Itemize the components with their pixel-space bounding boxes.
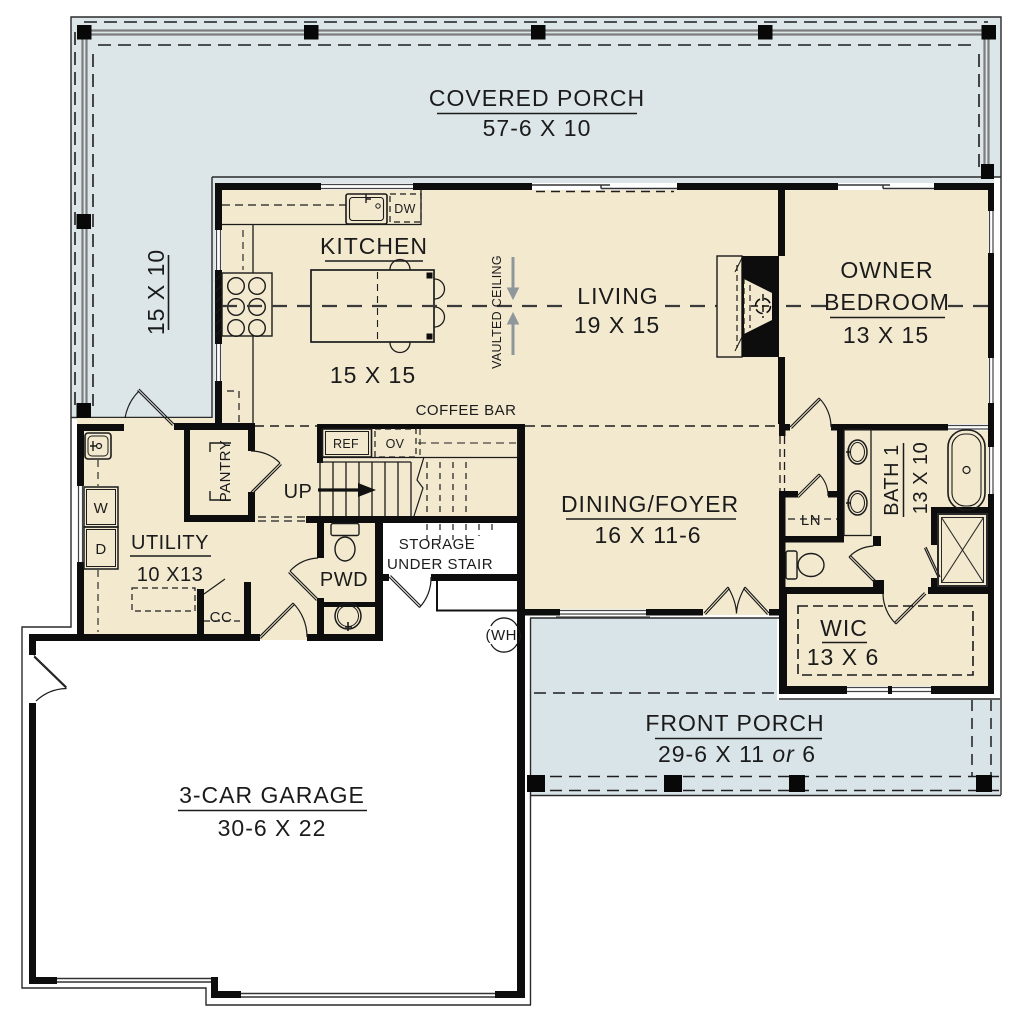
svg-text:PWD: PWD xyxy=(320,569,368,591)
svg-text:UNDER STAIR: UNDER STAIR xyxy=(387,556,493,573)
svg-text:W: W xyxy=(94,500,109,517)
svg-text:REF: REF xyxy=(333,437,359,451)
svg-text:19 X 15: 19 X 15 xyxy=(574,312,660,338)
svg-text:STORAGE: STORAGE xyxy=(399,536,476,553)
svg-text:13 X 10: 13 X 10 xyxy=(910,442,932,514)
svg-text:LIVING: LIVING xyxy=(577,283,658,309)
svg-text:10 X13: 10 X13 xyxy=(137,564,203,586)
svg-text:3-CAR GARAGE: 3-CAR GARAGE xyxy=(179,782,365,808)
svg-text:PANTRY: PANTRY xyxy=(217,440,234,502)
svg-text:COFFEE BAR: COFFEE BAR xyxy=(416,402,517,419)
svg-text:VAULTED CEILING: VAULTED CEILING xyxy=(490,255,504,369)
svg-text:COVERED PORCH: COVERED PORCH xyxy=(429,85,645,111)
svg-text:KITCHEN: KITCHEN xyxy=(320,233,428,259)
svg-text:UTILITY: UTILITY xyxy=(131,532,209,554)
svg-text:30-6 X 22: 30-6 X 22 xyxy=(218,815,327,841)
svg-text:13 X 15: 13 X 15 xyxy=(843,322,929,348)
svg-text:CC: CC xyxy=(210,609,233,626)
svg-text:BATH 1: BATH 1 xyxy=(881,444,903,516)
svg-text:13 X 6: 13 X 6 xyxy=(807,644,880,670)
svg-text:DW: DW xyxy=(394,202,415,216)
svg-text:15 X 15: 15 X 15 xyxy=(330,362,416,388)
svg-text:LN: LN xyxy=(801,512,821,529)
svg-text:OV: OV xyxy=(386,437,405,451)
svg-text:OWNER: OWNER xyxy=(840,257,933,283)
svg-text:57-6 X 10: 57-6 X 10 xyxy=(483,115,592,141)
svg-text:29-6 X 11 or 6: 29-6 X 11 or 6 xyxy=(658,741,816,767)
svg-text:WIC: WIC xyxy=(820,615,868,641)
svg-text:(WH): (WH) xyxy=(486,627,523,644)
svg-text:DINING/FOYER: DINING/FOYER xyxy=(561,491,739,517)
svg-text:BEDROOM: BEDROOM xyxy=(824,289,950,315)
svg-text:UP: UP xyxy=(284,481,313,503)
svg-text:15 X 10: 15 X 10 xyxy=(143,249,169,335)
svg-text:D: D xyxy=(95,541,106,558)
svg-text:16 X 11-6: 16 X 11-6 xyxy=(594,522,701,548)
svg-text:FRONT PORCH: FRONT PORCH xyxy=(645,710,824,736)
